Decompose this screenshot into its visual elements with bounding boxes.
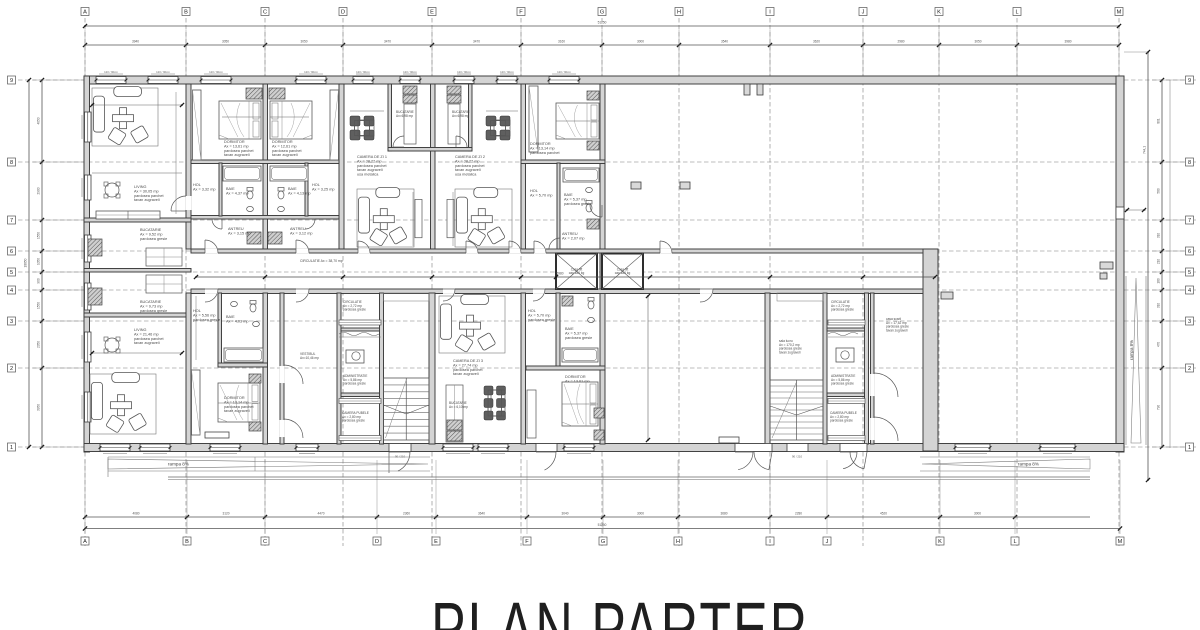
svg-text:744,1: 744,1 — [1143, 146, 1147, 154]
svg-text:9: 9 — [10, 78, 13, 84]
svg-text:120 / 90cm: 120 / 90cm — [557, 70, 572, 74]
svg-text:180: 180 — [1157, 278, 1161, 284]
svg-text:M: M — [1117, 10, 1122, 16]
svg-text:E: E — [430, 10, 434, 16]
svg-text:2: 2 — [10, 366, 13, 372]
svg-text:G: G — [600, 10, 604, 16]
svg-text:120 / 90cm: 120 / 90cm — [500, 70, 515, 74]
svg-text:rampa 8%: rampa 8% — [168, 462, 189, 467]
svg-text:120 / 90cm: 120 / 90cm — [356, 70, 371, 74]
svg-text:3160: 3160 — [558, 40, 565, 44]
svg-text:310: 310 — [1157, 233, 1161, 239]
svg-text:18850: 18850 — [24, 258, 28, 267]
svg-text:1: 1 — [1188, 445, 1191, 451]
svg-text:5980: 5980 — [556, 272, 563, 276]
svg-text:1550: 1550 — [37, 232, 41, 239]
svg-text:4520: 4520 — [880, 512, 887, 516]
svg-text:D: D — [341, 10, 345, 16]
svg-text:120 / 90cm: 120 / 90cm — [209, 70, 224, 74]
svg-text:D: D — [375, 539, 379, 545]
svg-text:2980: 2980 — [897, 40, 904, 44]
svg-text:120 / 90cm: 120 / 90cm — [457, 70, 472, 74]
svg-text:F: F — [519, 10, 523, 16]
svg-text:470: 470 — [1157, 342, 1161, 348]
svg-text:51250: 51250 — [598, 21, 607, 25]
svg-text:3980: 3980 — [1064, 40, 1071, 44]
svg-text:L: L — [1015, 10, 1018, 16]
svg-text:3040: 3040 — [561, 512, 568, 516]
svg-text:3: 3 — [10, 319, 13, 325]
svg-text:F: F — [525, 539, 529, 545]
svg-text:2280: 2280 — [795, 512, 802, 516]
svg-text:CIRCULATIE Ax = 38,70 mp: CIRCULATIE Ax = 38,70 mp — [300, 259, 343, 263]
svg-text:A: A — [83, 539, 87, 545]
svg-text:6: 6 — [10, 249, 13, 255]
svg-text:rampa 8%: rampa 8% — [1018, 462, 1039, 467]
svg-text:3050: 3050 — [974, 40, 981, 44]
svg-text:210: 210 — [1157, 259, 1161, 265]
svg-text:3000: 3000 — [637, 40, 644, 44]
svg-text:3470: 3470 — [473, 40, 480, 44]
svg-text:580: 580 — [1157, 188, 1161, 194]
svg-text:H: H — [676, 539, 680, 545]
svg-text:51250: 51250 — [598, 523, 607, 527]
svg-text:C: C — [263, 10, 267, 16]
svg-text:1: 1 — [10, 445, 13, 451]
svg-text:3050: 3050 — [300, 40, 307, 44]
svg-text:2350: 2350 — [37, 341, 41, 348]
svg-text:2: 2 — [1188, 366, 1191, 372]
svg-text:9: 9 — [1188, 78, 1191, 84]
svg-text:2360: 2360 — [403, 512, 410, 516]
svg-text:1050: 1050 — [37, 258, 41, 265]
svg-text:3620: 3620 — [813, 40, 820, 44]
svg-text:4080: 4080 — [132, 512, 139, 516]
svg-text:A: A — [83, 10, 87, 16]
svg-text:B: B — [185, 539, 189, 545]
svg-text:4470: 4470 — [317, 512, 324, 516]
svg-text:Casa liftcap 630 kg: Casa liftcap 630 kg — [569, 267, 585, 275]
svg-text:BUCATARIEAx=6,98 mp: BUCATARIEAx=6,98 mp — [396, 110, 414, 118]
svg-text:3000: 3000 — [974, 512, 981, 516]
svg-text:7: 7 — [10, 218, 13, 224]
svg-text:8: 8 — [1188, 160, 1191, 166]
svg-text:900: 900 — [37, 278, 41, 284]
svg-text:6: 6 — [1188, 249, 1191, 255]
svg-text:5: 5 — [1188, 270, 1191, 276]
svg-text:rampa 8%: rampa 8% — [1129, 340, 1134, 360]
svg-text:120 / 90cm: 120 / 90cm — [104, 70, 119, 74]
svg-text:K: K — [937, 10, 941, 16]
svg-text:E: E — [434, 539, 438, 545]
svg-text:3470: 3470 — [384, 40, 391, 44]
svg-text:1550: 1550 — [37, 302, 41, 309]
svg-text:3950: 3950 — [37, 404, 41, 411]
svg-text:4: 4 — [1188, 288, 1191, 294]
svg-text:3680: 3680 — [720, 512, 727, 516]
svg-text:801: 801 — [1157, 118, 1161, 124]
svg-text:3540: 3540 — [721, 40, 728, 44]
svg-text:K: K — [938, 539, 942, 545]
svg-text:BUCATARIEAx=6,98 mp: BUCATARIEAx=6,98 mp — [452, 110, 470, 118]
svg-text:3050: 3050 — [222, 40, 229, 44]
svg-text:120 / 90cm: 120 / 90cm — [156, 70, 171, 74]
svg-text:310: 310 — [1157, 303, 1161, 309]
svg-text:G: G — [601, 539, 605, 545]
svg-text:3000: 3000 — [637, 512, 644, 516]
svg-text:90 / 210: 90 / 210 — [395, 455, 406, 459]
svg-text:7: 7 — [1188, 218, 1191, 224]
svg-text:J: J — [826, 539, 829, 545]
svg-text:120 / 90cm: 120 / 90cm — [304, 70, 319, 74]
svg-text:4: 4 — [10, 288, 13, 294]
svg-text:120 / 90cm: 120 / 90cm — [403, 70, 418, 74]
svg-text:B: B — [184, 10, 188, 16]
svg-text:Casa liftcap 630 kg: Casa liftcap 630 kg — [615, 267, 631, 275]
svg-text:4050: 4050 — [37, 117, 41, 124]
svg-text:3640: 3640 — [478, 512, 485, 516]
svg-text:H: H — [677, 10, 681, 16]
svg-text:J: J — [862, 10, 865, 16]
svg-text:8: 8 — [10, 160, 13, 166]
svg-text:PLAN PARTER: PLAN PARTER — [431, 587, 809, 630]
svg-text:5: 5 — [10, 270, 13, 276]
svg-text:3120: 3120 — [222, 512, 229, 516]
svg-text:790: 790 — [1157, 405, 1161, 411]
svg-text:90 / 210: 90 / 210 — [792, 455, 803, 459]
svg-text:C: C — [263, 539, 267, 545]
svg-text:M: M — [1118, 539, 1123, 545]
svg-text:2900: 2900 — [37, 187, 41, 194]
svg-text:3: 3 — [1188, 319, 1191, 325]
svg-text:L: L — [1013, 539, 1016, 545]
svg-text:3940: 3940 — [132, 40, 139, 44]
svg-text:BUCATARIEAx = 6,10 mp: BUCATARIEAx = 6,10 mp — [449, 401, 468, 409]
